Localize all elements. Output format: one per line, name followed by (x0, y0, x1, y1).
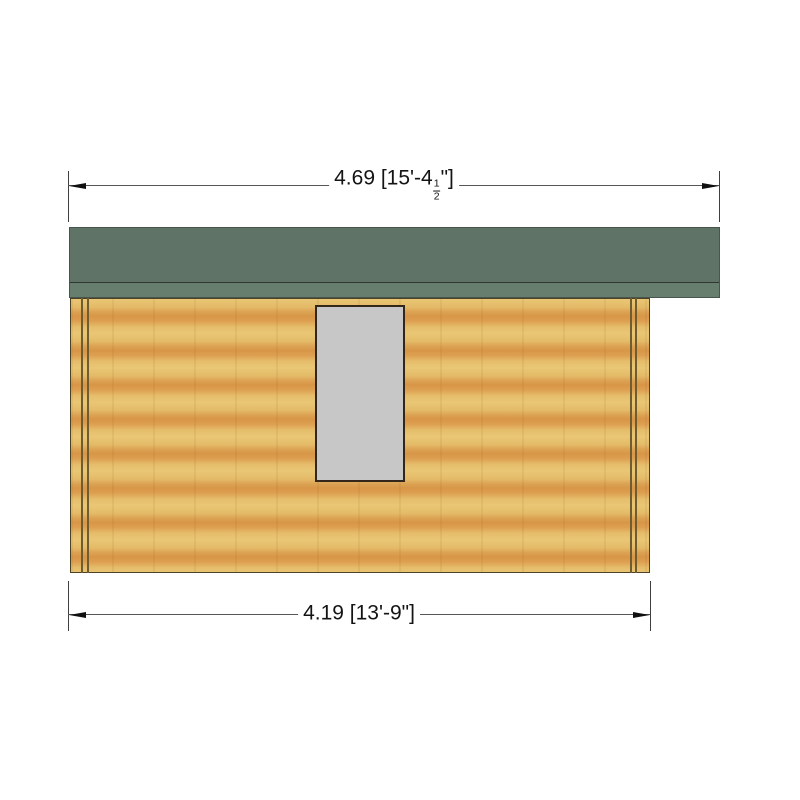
top-dimension-label-prefix: 4.69 [15'-4 (334, 167, 433, 190)
bottom-dimension-extension-line-left (68, 581, 69, 631)
drawing-canvas: 4.69 [15'-412"] 4.19 [13'-9"] (0, 0, 800, 800)
top-dimension-extension-line-right (719, 171, 720, 222)
roof (69, 227, 720, 298)
top-dimension-extension-line-left (68, 171, 69, 222)
corner-joint-line-right-inner (630, 298, 632, 573)
bottom-dimension-arrow-left (69, 612, 86, 618)
top-dimension-arrow-left (69, 183, 86, 189)
top-dimension-label-suffix: "] (441, 167, 454, 190)
roof-fascia (70, 282, 719, 297)
window (315, 305, 405, 482)
top-dimension-label: 4.69 [15'-412"] (329, 166, 459, 203)
bottom-dimension-label-text: 4.19 [13'-9"] (303, 601, 415, 624)
bottom-dimension-extension-line-right (650, 581, 651, 631)
top-dimension-arrow-right (702, 183, 719, 189)
corner-joint-line-left-inner (87, 298, 89, 573)
bottom-dimension-arrow-right (633, 612, 650, 618)
bottom-dimension-label: 4.19 [13'-9"] (298, 600, 420, 625)
corner-joint-line-right-outer (635, 298, 637, 573)
corner-joint-line-left-outer (81, 298, 83, 573)
fraction-denominator: 2 (433, 191, 441, 202)
